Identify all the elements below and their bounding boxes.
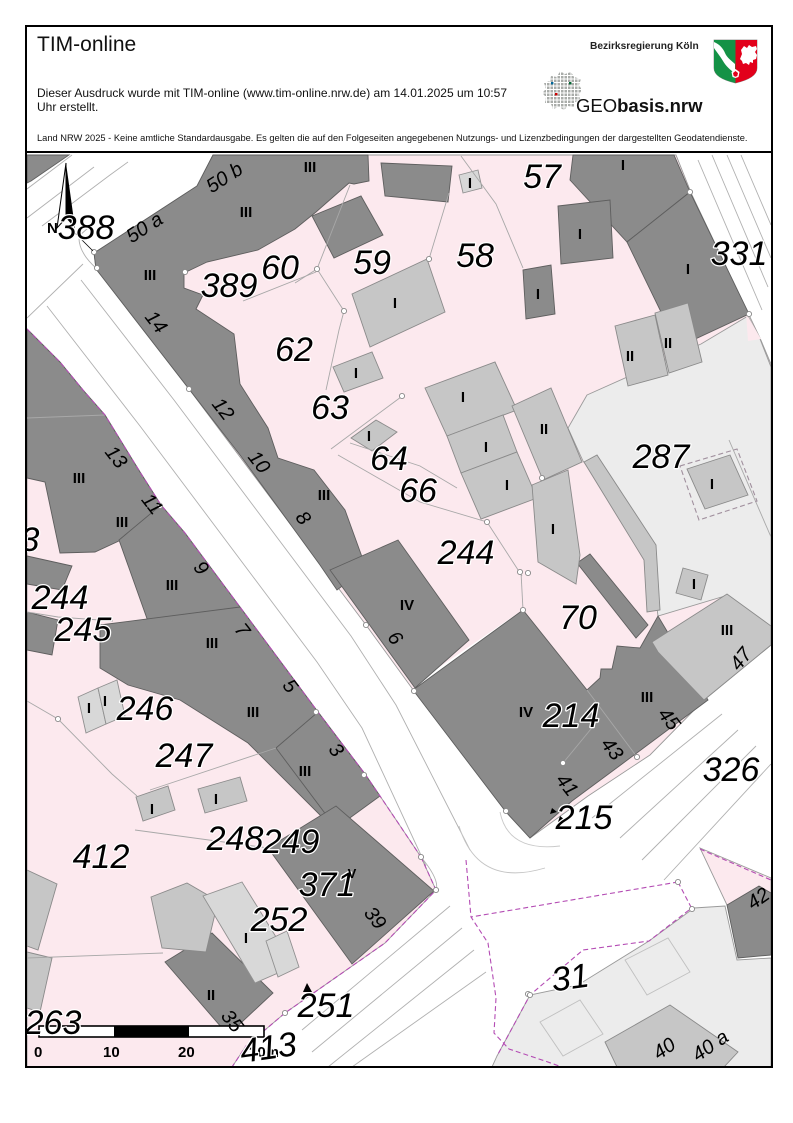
svg-text:66: 66	[399, 472, 437, 510]
svg-text:3: 3	[27, 521, 40, 559]
svg-text:I: I	[354, 365, 358, 382]
svg-text:412: 412	[73, 838, 130, 876]
svg-text:215: 215	[555, 799, 613, 837]
svg-text:62: 62	[275, 331, 313, 369]
svg-text:III: III	[641, 689, 654, 706]
svg-text:I: I	[150, 801, 154, 818]
svg-text:III: III	[166, 577, 179, 594]
svg-text:251: 251	[297, 987, 355, 1025]
svg-text:I: I	[244, 930, 248, 947]
svg-text:I: I	[103, 693, 107, 710]
svg-text:II: II	[540, 421, 548, 438]
svg-text:III: III	[318, 487, 331, 504]
svg-text:252: 252	[250, 901, 308, 939]
svg-text:III: III	[247, 704, 260, 721]
svg-text:I: I	[551, 521, 555, 538]
svg-text:III: III	[299, 763, 312, 780]
svg-text:II: II	[207, 987, 215, 1004]
svg-text:I: I	[87, 700, 91, 717]
svg-text:389: 389	[201, 267, 258, 305]
svg-text:II: II	[626, 348, 634, 365]
svg-text:I: I	[621, 157, 625, 174]
svg-text:I: I	[505, 477, 509, 494]
svg-text:III: III	[206, 635, 219, 652]
svg-text:247: 247	[155, 737, 214, 775]
svg-text:I: I	[367, 428, 371, 445]
svg-text:70: 70	[559, 599, 597, 637]
svg-text:331: 331	[711, 235, 768, 273]
svg-text:263: 263	[27, 1004, 81, 1042]
svg-text:60: 60	[261, 249, 299, 287]
svg-text:57: 57	[523, 158, 562, 196]
svg-text:I: I	[484, 439, 488, 456]
svg-text:III: III	[73, 470, 86, 487]
svg-text:248: 248	[206, 820, 264, 858]
svg-text:413: 413	[238, 1025, 300, 1066]
svg-text:10: 10	[103, 1044, 120, 1061]
svg-text:20: 20	[178, 1044, 195, 1061]
svg-text:III: III	[721, 622, 734, 639]
svg-text:IV: IV	[400, 597, 414, 614]
svg-text:I: I	[686, 261, 690, 278]
svg-text:I: I	[536, 286, 540, 303]
svg-text:246: 246	[116, 690, 174, 728]
svg-text:I: I	[461, 389, 465, 406]
svg-text:326: 326	[703, 751, 760, 789]
svg-text:31: 31	[549, 957, 592, 1000]
svg-text:I: I	[214, 791, 218, 808]
svg-text:III: III	[116, 514, 129, 531]
svg-text:63: 63	[311, 389, 349, 427]
svg-text:214: 214	[542, 697, 600, 735]
svg-text:I: I	[710, 476, 714, 493]
svg-text:I: I	[692, 576, 696, 593]
svg-text:V: V	[348, 866, 357, 881]
svg-text:249: 249	[262, 823, 320, 861]
svg-text:287: 287	[632, 438, 691, 476]
svg-text:N: N	[47, 220, 58, 237]
svg-text:III: III	[144, 267, 157, 284]
svg-text:0: 0	[34, 1044, 42, 1061]
svg-text:245: 245	[54, 611, 112, 649]
svg-text:I: I	[578, 226, 582, 243]
svg-text:58: 58	[456, 237, 494, 275]
svg-text:I: I	[468, 175, 472, 192]
svg-text:244: 244	[437, 534, 495, 572]
svg-text:I: I	[393, 295, 397, 312]
svg-text:59: 59	[353, 244, 391, 282]
svg-text:388: 388	[58, 209, 115, 247]
svg-text:III: III	[240, 204, 253, 221]
svg-text:II: II	[664, 335, 672, 352]
svg-text:IV: IV	[519, 704, 533, 721]
svg-text:III: III	[304, 159, 317, 176]
